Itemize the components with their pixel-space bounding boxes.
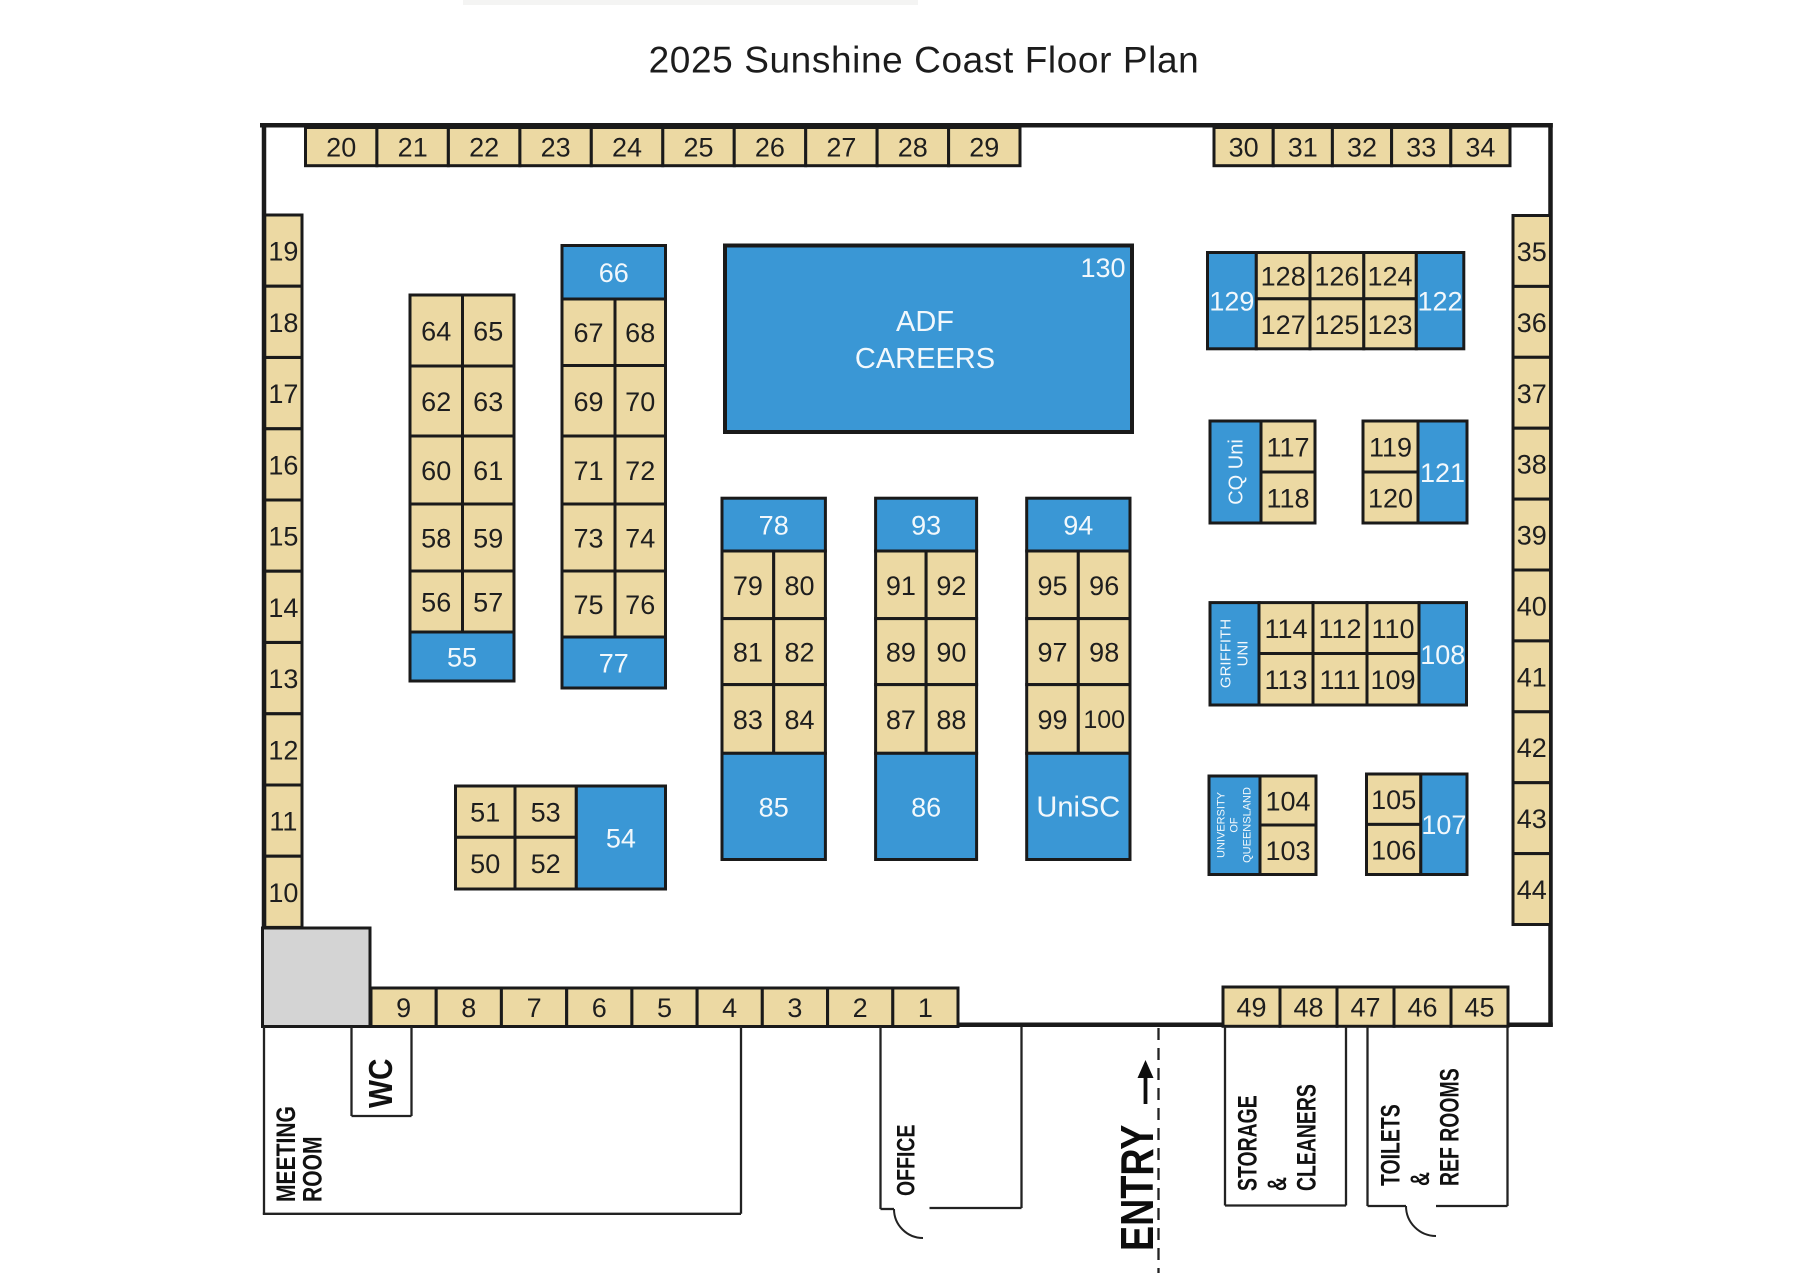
svg-text:CLEANERS: CLEANERS [1292,1084,1322,1191]
svg-text:5: 5 [657,993,672,1023]
svg-text:65: 65 [473,317,503,347]
svg-text:46: 46 [1407,993,1437,1023]
svg-text:93: 93 [911,511,941,541]
svg-text:77: 77 [599,649,629,679]
svg-text:99: 99 [1037,705,1067,735]
svg-text:31: 31 [1288,133,1318,163]
svg-text:92: 92 [936,571,966,601]
svg-text:91: 91 [886,571,916,601]
svg-text:37: 37 [1517,379,1547,409]
svg-text:14: 14 [268,593,298,623]
svg-text:127: 127 [1261,310,1306,340]
svg-text:105: 105 [1371,785,1416,815]
svg-text:103: 103 [1265,836,1310,866]
svg-text:42: 42 [1517,733,1547,763]
svg-text:112: 112 [1318,614,1361,644]
svg-text:27: 27 [826,133,856,163]
svg-text:CAREERS: CAREERS [855,343,995,375]
svg-text:OF: OF [1229,817,1241,833]
svg-text:1: 1 [918,993,933,1023]
svg-text:&: & [1262,1177,1292,1191]
svg-text:97: 97 [1037,638,1067,668]
svg-text:106: 106 [1371,836,1416,866]
svg-text:30: 30 [1229,133,1259,163]
svg-text:9: 9 [396,993,411,1023]
svg-text:56: 56 [421,588,451,618]
svg-text:11: 11 [269,807,297,837]
svg-text:68: 68 [625,318,655,348]
svg-text:51: 51 [470,798,500,828]
svg-text:63: 63 [473,387,503,417]
svg-text:52: 52 [531,849,561,879]
svg-text:88: 88 [936,705,966,735]
svg-text:2: 2 [853,993,868,1023]
svg-text:8: 8 [461,993,476,1023]
svg-text:ENTRY: ENTRY [1111,1125,1162,1251]
svg-text:94: 94 [1063,511,1093,541]
svg-text:15: 15 [268,522,298,552]
svg-text:18: 18 [268,308,298,338]
svg-text:OFFICE: OFFICE [892,1124,920,1196]
svg-text:69: 69 [573,387,603,417]
svg-text:86: 86 [911,792,941,822]
svg-text:128: 128 [1261,262,1306,292]
svg-text:36: 36 [1517,308,1547,338]
svg-text:70: 70 [625,387,655,417]
svg-text:59: 59 [473,524,503,554]
svg-text:13: 13 [268,664,298,694]
svg-text:12: 12 [268,735,298,765]
svg-text:123: 123 [1367,310,1412,340]
svg-text:126: 126 [1314,262,1359,292]
svg-text:REF ROOMS: REF ROOMS [1435,1068,1465,1186]
svg-text:96: 96 [1089,571,1119,601]
svg-text:85: 85 [759,792,789,822]
svg-text:&: & [1405,1172,1435,1186]
svg-text:53: 53 [531,798,561,828]
svg-text:26: 26 [755,133,785,163]
svg-text:19: 19 [268,237,298,267]
svg-text:90: 90 [936,638,966,668]
svg-text:104: 104 [1265,787,1310,817]
svg-text:113: 113 [1264,665,1307,695]
svg-text:41: 41 [1517,662,1547,692]
svg-text:80: 80 [784,571,814,601]
svg-text:7: 7 [527,993,542,1023]
svg-text:79: 79 [733,571,763,601]
svg-text:129: 129 [1209,287,1254,317]
svg-text:57: 57 [473,588,503,618]
svg-text:25: 25 [683,133,713,163]
svg-text:29: 29 [969,133,999,163]
svg-text:21: 21 [398,133,428,163]
svg-text:83: 83 [733,705,763,735]
svg-text:ROOM: ROOM [298,1137,328,1202]
svg-text:UNIVERSITY: UNIVERSITY [1216,791,1228,858]
svg-text:35: 35 [1517,237,1547,267]
svg-text:TOILETS: TOILETS [1376,1104,1406,1186]
svg-text:82: 82 [784,638,814,668]
svg-text:73: 73 [573,524,603,554]
svg-text:58: 58 [421,524,451,554]
svg-text:71: 71 [573,456,603,486]
svg-text:48: 48 [1293,993,1323,1023]
svg-text:STORAGE: STORAGE [1233,1095,1263,1191]
svg-text:6: 6 [592,993,607,1023]
svg-text:23: 23 [541,133,571,163]
svg-text:UniSC: UniSC [1036,791,1120,823]
svg-text:39: 39 [1517,521,1547,551]
svg-text:111: 111 [1319,665,1360,695]
svg-text:120: 120 [1368,484,1413,514]
svg-text:28: 28 [898,133,928,163]
svg-text:40: 40 [1517,592,1547,622]
svg-text:107: 107 [1421,810,1466,840]
svg-text:50: 50 [470,849,500,879]
svg-text:67: 67 [573,318,603,348]
svg-text:WC: WC [363,1059,400,1108]
svg-text:100: 100 [1083,706,1125,734]
svg-text:16: 16 [268,450,298,480]
svg-text:62: 62 [421,387,451,417]
svg-text:98: 98 [1089,638,1119,668]
svg-text:45: 45 [1464,993,1494,1023]
svg-text:110: 110 [1371,614,1414,644]
svg-text:119: 119 [1369,433,1412,463]
svg-text:74: 74 [625,524,655,554]
svg-text:76: 76 [625,590,655,620]
svg-text:81: 81 [733,638,763,668]
svg-text:124: 124 [1367,262,1412,292]
svg-text:75: 75 [573,590,603,620]
svg-text:84: 84 [784,705,814,735]
svg-text:47: 47 [1350,993,1380,1023]
svg-text:64: 64 [421,317,451,347]
svg-text:109: 109 [1370,665,1415,695]
svg-text:34: 34 [1465,133,1495,163]
svg-text:UNI: UNI [1235,641,1252,667]
svg-text:4: 4 [722,993,737,1023]
svg-text:CQ Uni: CQ Uni [1226,439,1248,505]
svg-text:2025 Sunshine Coast Floor Plan: 2025 Sunshine Coast Floor Plan [649,40,1200,81]
svg-text:61: 61 [473,456,503,486]
svg-text:122: 122 [1417,287,1462,317]
svg-text:QUEENSLAND: QUEENSLAND [1242,787,1254,863]
svg-text:44: 44 [1517,875,1547,905]
svg-text:24: 24 [612,133,642,163]
svg-text:95: 95 [1037,571,1067,601]
svg-text:ADF: ADF [896,306,954,338]
svg-text:121: 121 [1420,458,1465,488]
svg-text:60: 60 [421,456,451,486]
svg-text:130: 130 [1080,253,1125,283]
svg-text:66: 66 [599,258,629,288]
svg-text:87: 87 [886,705,916,735]
svg-text:125: 125 [1314,310,1359,340]
svg-text:32: 32 [1347,133,1377,163]
svg-text:20: 20 [326,133,356,163]
svg-text:108: 108 [1420,640,1465,670]
svg-text:89: 89 [886,638,916,668]
svg-text:55: 55 [447,643,477,673]
svg-text:72: 72 [625,456,655,486]
svg-text:118: 118 [1266,484,1309,514]
svg-text:GRIFFITH: GRIFFITH [1218,619,1235,688]
svg-text:54: 54 [606,824,636,854]
svg-text:17: 17 [268,379,298,409]
svg-text:10: 10 [268,878,298,908]
svg-text:33: 33 [1406,133,1436,163]
svg-text:3: 3 [787,993,802,1023]
svg-text:43: 43 [1517,804,1547,834]
svg-text:78: 78 [759,511,789,541]
svg-text:49: 49 [1236,993,1266,1023]
svg-text:22: 22 [469,133,499,163]
svg-text:117: 117 [1266,433,1309,463]
svg-text:114: 114 [1264,614,1307,644]
svg-text:38: 38 [1517,450,1547,480]
